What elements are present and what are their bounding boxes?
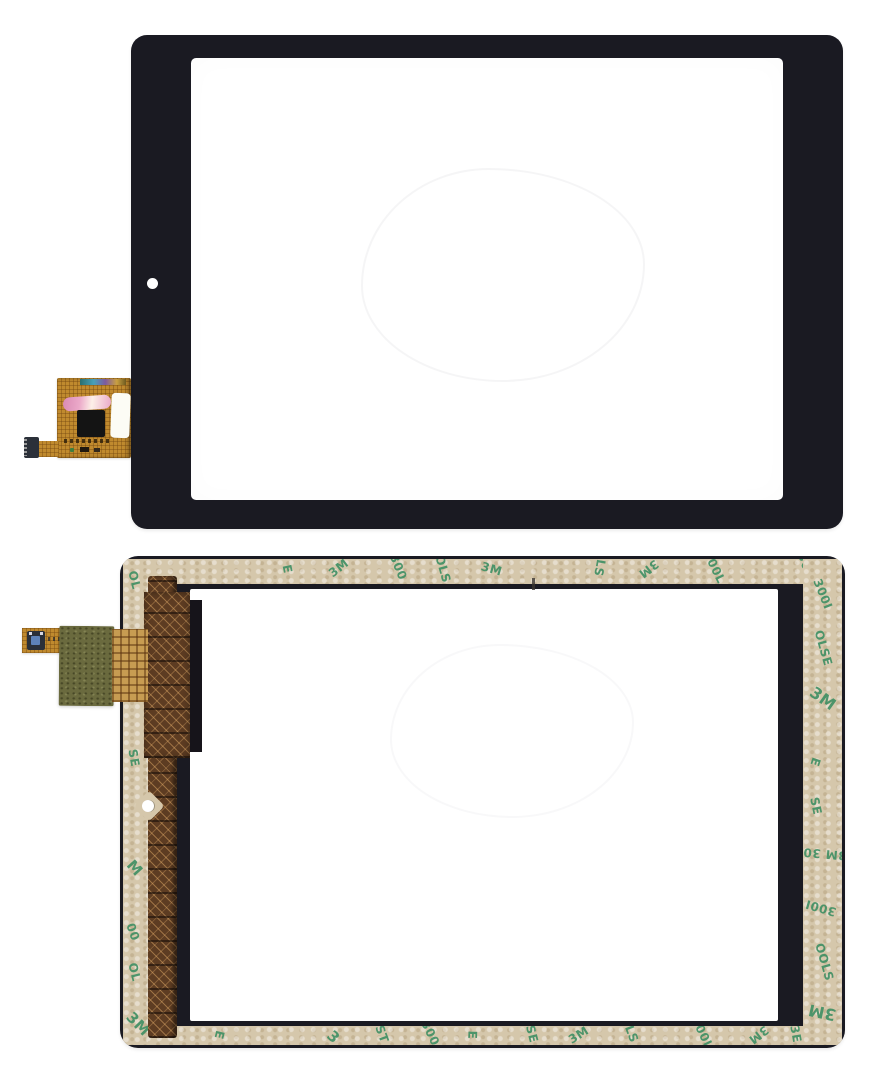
tape-print-fragment: OLS (432, 559, 453, 584)
tape-print-fragment: 3M (326, 559, 351, 580)
tape-print-fragment: 00 (123, 921, 142, 942)
flex-bonding-area (144, 592, 190, 758)
tape-print-fragment: 300L (688, 1026, 716, 1045)
tape-print-fragment: 300 (387, 559, 410, 582)
front-glass-window (191, 58, 783, 500)
tape-print-fragment: 3M (806, 1000, 837, 1024)
tape-print-fragment: OL (125, 961, 143, 983)
connector-pin (29, 632, 32, 635)
tape-print-fragment: OLSE (812, 628, 836, 667)
tape-print-fragment: E (280, 563, 296, 574)
faint-reflection (390, 644, 634, 818)
tape-print-fragment: 300L (700, 559, 728, 584)
tape-print-fragment: 3E (787, 1026, 804, 1044)
flex-bonding-shadow (190, 600, 202, 752)
tape-print-fragment: 3M 30 (803, 845, 842, 863)
liner-seam-mark (532, 578, 535, 590)
tape-print-fragment: 3M (123, 1008, 148, 1039)
tape-print-fragment: E (807, 756, 823, 769)
tape-print-fragment: SE (125, 748, 142, 768)
tape-print-fragment: 300 (418, 1026, 442, 1045)
tape-print-fragment: OOLS (812, 941, 836, 982)
flex-trace-area (112, 629, 148, 702)
tape-print-fragment: SE (523, 1026, 541, 1044)
tape-print-fragment: 3M (566, 1026, 591, 1045)
tape-print-fragment: LS (622, 1026, 641, 1045)
back-camera-hole (142, 800, 154, 812)
flex-part-number-marking (64, 439, 110, 443)
tape-print-fragment: E (212, 1029, 228, 1041)
product-photo: E3M300OLS3MLS3M300L300I E3ST300ESE3MLS30… (0, 0, 885, 1080)
tape-print-fragment: 3M (806, 683, 840, 715)
ic-cover-tape (59, 626, 115, 706)
tape-print-fragment: E (465, 1030, 479, 1039)
smd-component (70, 448, 74, 452)
front-camera-hole (147, 278, 158, 289)
adhesive-tape-bottom: E3ST300ESE3MLS300L3M3E (123, 1026, 842, 1045)
tape-print-fragment: 3M (636, 559, 661, 581)
back-glass-window (190, 589, 778, 1021)
flex-smd-components (66, 447, 118, 454)
adhesive-tape-right: 300IOLSE3MESE3M 30300IOOLS3M (803, 559, 842, 1045)
tape-print-fragment: 300I (804, 897, 838, 919)
connector-pin (40, 632, 43, 635)
controller-ic-chip (77, 410, 105, 437)
tape-print-fragment: 300I (810, 577, 835, 611)
holographic-strip (80, 379, 126, 385)
tape-print-fragment: ST (372, 1026, 391, 1045)
tape-print-fragment: M (123, 856, 147, 880)
smd-component (80, 447, 89, 452)
tape-print-fragment: LS (591, 559, 608, 578)
tape-print-fragment: OL (125, 569, 143, 591)
front-flex-tail (38, 441, 59, 457)
smd-component (94, 448, 100, 452)
connector-stiffener (31, 636, 40, 645)
digitizer-front-view (131, 35, 843, 529)
white-label-sticker (110, 393, 131, 439)
tape-print-fragment: 3M (746, 1026, 771, 1045)
digitizer-back-view: E3M300OLS3MLS3M300L300I E3ST300ESE3MLS30… (120, 556, 845, 1048)
faint-reflection (361, 168, 645, 382)
adhesive-tape-top: E3M300OLS3MLS3M300L300I (123, 559, 842, 584)
back-flex-connector (27, 631, 45, 650)
tape-print-fragment: 3 (323, 1027, 343, 1045)
front-flex-connector (24, 437, 39, 458)
tape-print-fragment: SE (807, 796, 824, 816)
tape-print-fragment: 3M (479, 559, 503, 578)
